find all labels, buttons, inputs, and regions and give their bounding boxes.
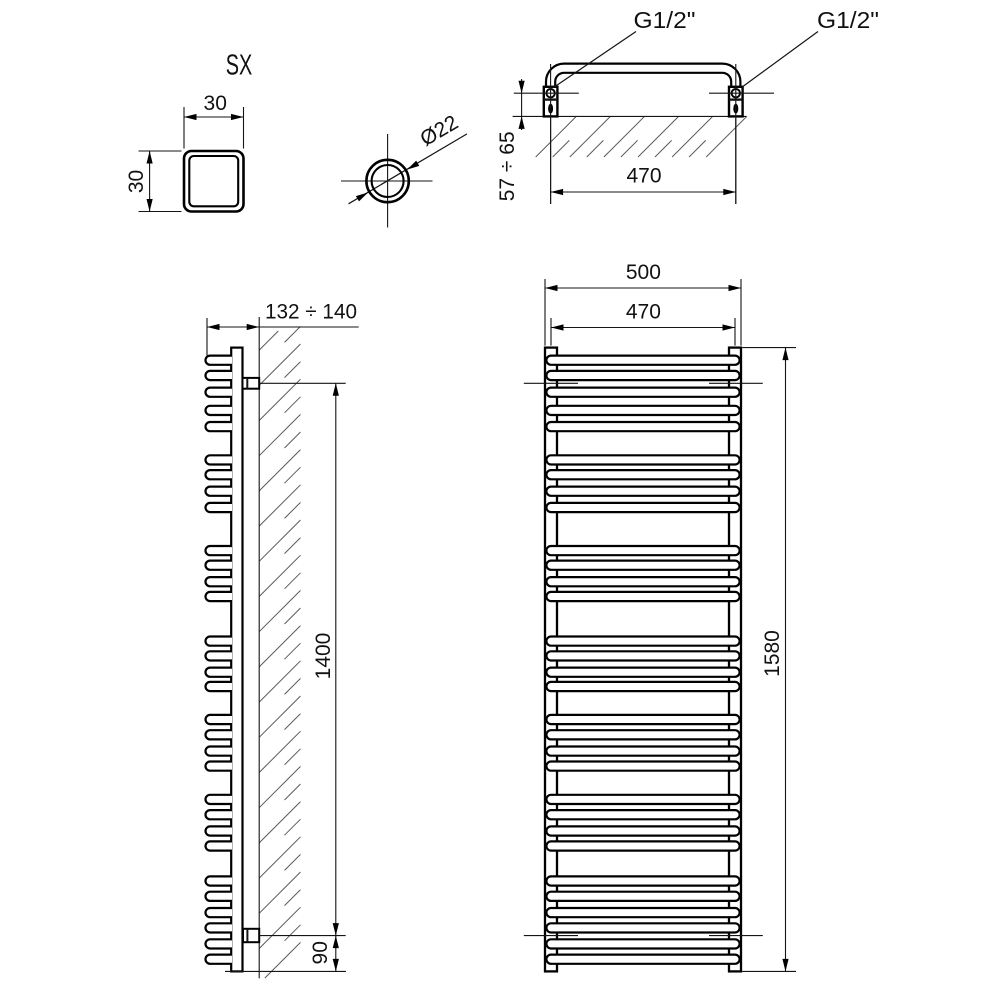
svg-text:1580: 1580 xyxy=(761,630,784,677)
svg-text:470: 470 xyxy=(626,165,661,188)
svg-text:132 ÷ 140: 132 ÷ 140 xyxy=(265,301,357,324)
svg-text:90: 90 xyxy=(309,941,332,964)
svg-text:500: 500 xyxy=(626,261,661,284)
svg-text:Ø22: Ø22 xyxy=(416,111,462,151)
svg-text:30: 30 xyxy=(204,92,227,115)
svg-text:SX: SX xyxy=(226,50,253,82)
svg-text:G1/2": G1/2" xyxy=(634,7,696,33)
svg-text:57 ÷ 65: 57 ÷ 65 xyxy=(496,131,519,201)
svg-text:1400: 1400 xyxy=(312,633,335,680)
svg-text:30: 30 xyxy=(125,170,148,193)
svg-text:470: 470 xyxy=(626,301,661,324)
svg-text:G1/2": G1/2" xyxy=(817,7,879,33)
